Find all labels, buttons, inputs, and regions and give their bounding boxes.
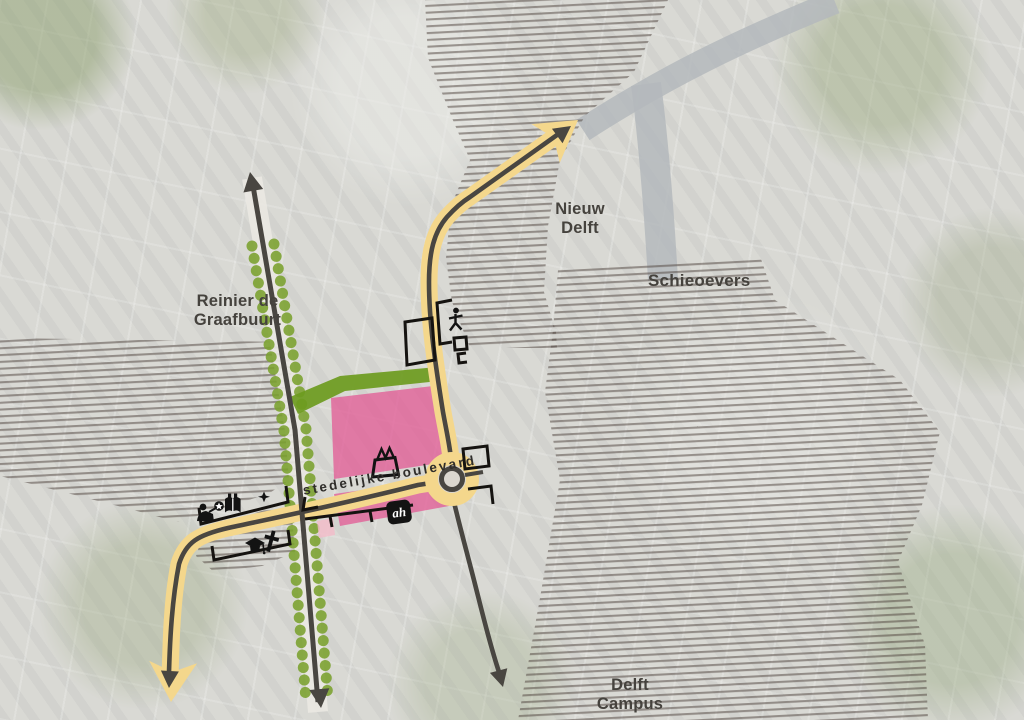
dark-arrowhead-south [490, 668, 512, 689]
label-schieoevers: Schieoevers [648, 271, 808, 291]
ah-logo-text: ah [391, 504, 407, 521]
label-nieuw-delft: Nieuw Delft [530, 200, 630, 238]
building-outline-station-small [454, 337, 467, 350]
star-badge-icon [214, 501, 224, 511]
hatched-areas [0, 0, 940, 720]
map-overlay-graphics: ah [0, 0, 1024, 720]
hatched-area-schieoevers [518, 256, 940, 720]
label-reinier-de-graafbuurt: Reinier de Graafbuurt [155, 292, 320, 330]
aerial-map-canvas: ah Reinier de Graafbuurt Nieuw Delft Sch… [0, 0, 1024, 720]
label-delft-campus: Delft Campus [570, 676, 690, 714]
ah-logo: ah [386, 499, 413, 525]
hatched-area-west [0, 338, 308, 522]
building-outline-station-east [437, 300, 452, 344]
building-outline-station-hook [458, 353, 467, 363]
south-branch-dark-line [453, 498, 499, 672]
